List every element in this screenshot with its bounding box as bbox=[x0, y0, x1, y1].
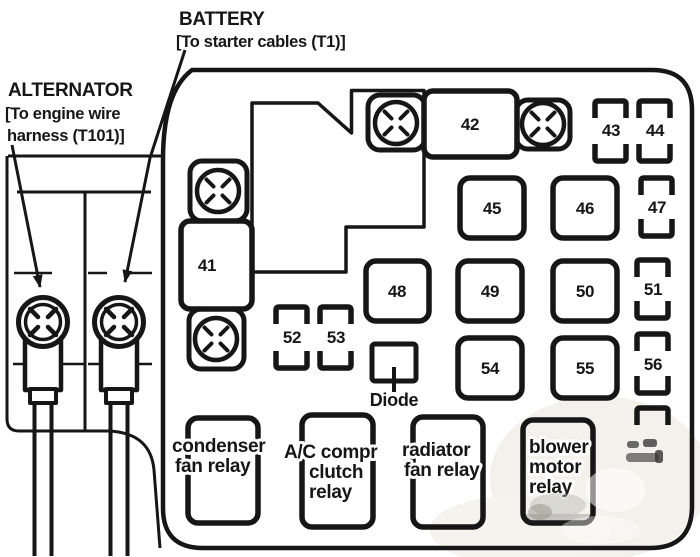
fuse-49: 49 bbox=[458, 261, 522, 321]
bracket-icon bbox=[637, 334, 668, 351]
alternator-pointer-arrow bbox=[12, 145, 40, 287]
fuse-42: 42 bbox=[368, 91, 570, 157]
fuse-54-number: 54 bbox=[481, 359, 500, 378]
battery-label: BATTERY bbox=[179, 9, 265, 30]
diode-symbol: Diode bbox=[370, 344, 419, 410]
bracket-icon bbox=[595, 144, 626, 161]
bracket-icon bbox=[595, 101, 626, 118]
bracket-icon bbox=[637, 260, 668, 277]
bracket-icon bbox=[320, 351, 351, 368]
fuse-box-diagram-page: 42 41 43 44 47 51 56 52 bbox=[0, 0, 700, 557]
alternator-callout: ALTERNATOR [To engine wire harness (T101… bbox=[5, 80, 133, 145]
bracket-icon bbox=[641, 178, 672, 195]
alternator-sublabel-2: harness (T101)] bbox=[7, 127, 124, 145]
battery-callout: BATTERY [To starter cables (T1)] bbox=[176, 9, 345, 51]
fuse-50-number: 50 bbox=[576, 282, 594, 301]
fuse-45-number: 45 bbox=[483, 199, 501, 218]
battery-pointer-arrow bbox=[125, 50, 185, 282]
fuse-slot-51: 51 bbox=[637, 260, 668, 318]
fuse-41: 41 bbox=[181, 161, 252, 369]
fuse-54: 54 bbox=[458, 338, 522, 398]
screw-terminal-icon bbox=[522, 103, 564, 145]
fuse-box-diagram: 42 41 43 44 47 51 56 52 bbox=[0, 0, 700, 557]
relay-ac-label-2: clutch bbox=[309, 462, 363, 483]
diode-label: Diode bbox=[370, 390, 419, 410]
relay-condenser-fan: condenser fan relay bbox=[172, 418, 266, 523]
fuse-48: 48 bbox=[366, 261, 429, 321]
relay-radiator-label-2: fan relay bbox=[404, 460, 480, 481]
relay-blower-label-2: motor bbox=[529, 457, 582, 478]
bracket-icon bbox=[637, 376, 668, 393]
screw-terminal-icon bbox=[197, 170, 239, 212]
fuse-slot-56: 56 bbox=[637, 334, 668, 393]
fuse-41-number: 41 bbox=[198, 256, 216, 275]
fuse-slot-47: 47 bbox=[641, 178, 672, 236]
fuse-50: 50 bbox=[553, 261, 617, 321]
screw-terminal-icon bbox=[375, 102, 417, 144]
bracket-icon bbox=[320, 307, 351, 324]
fuse-46-number: 46 bbox=[576, 199, 594, 218]
fuse-49-number: 49 bbox=[481, 282, 499, 301]
fuse-42-number: 42 bbox=[461, 115, 479, 134]
fuse-slot-52: 52 bbox=[276, 307, 307, 368]
alternator-label: ALTERNATOR bbox=[8, 80, 133, 101]
relay-ac-compressor-clutch: A/C compr clutch relay bbox=[284, 415, 378, 527]
fuse-52-number: 52 bbox=[283, 328, 301, 347]
fuse-43-number: 43 bbox=[602, 121, 620, 140]
fuse-55: 55 bbox=[553, 338, 617, 398]
relay-blower-label-1: blower bbox=[529, 437, 589, 458]
battery-cable bbox=[101, 336, 137, 556]
fuse-47-number: 47 bbox=[648, 198, 666, 217]
fuse-slot-44: 44 bbox=[639, 101, 670, 161]
alternator-ring-terminal bbox=[19, 298, 68, 347]
fuse-53-number: 53 bbox=[327, 328, 345, 347]
fuse-slot-53: 53 bbox=[320, 307, 351, 368]
fuse-slot-43: 43 bbox=[595, 101, 626, 161]
relay-radiator-label-1: radiator bbox=[402, 440, 471, 461]
relay-ac-label-3: relay bbox=[309, 482, 353, 503]
fuse-45: 45 bbox=[460, 178, 524, 238]
relay-condenser-label-1: condenser bbox=[172, 436, 266, 457]
alternator-cable bbox=[25, 336, 61, 556]
screw-terminal-icon bbox=[195, 318, 237, 360]
fuse-48-number: 48 bbox=[388, 282, 406, 301]
bracket-icon bbox=[639, 101, 670, 118]
bracket-icon bbox=[637, 301, 668, 318]
relay-condenser-label-2: fan relay bbox=[175, 456, 251, 477]
battery-sublabel: [To starter cables (T1)] bbox=[176, 33, 345, 51]
fuse-41-body bbox=[181, 221, 252, 309]
fuse-46: 46 bbox=[553, 178, 617, 238]
fuse-51-number: 51 bbox=[644, 280, 662, 299]
bracket-icon bbox=[639, 144, 670, 161]
fuse-55-number: 55 bbox=[576, 359, 594, 378]
bracket-icon bbox=[276, 307, 307, 324]
battery-ring-terminal bbox=[95, 298, 144, 347]
bracket-icon bbox=[276, 351, 307, 368]
bracket-icon bbox=[641, 219, 672, 236]
relay-ac-label-1: A/C compr bbox=[284, 442, 378, 463]
alternator-sublabel-1: [To engine wire bbox=[5, 105, 120, 123]
fuse-44-number: 44 bbox=[646, 121, 665, 140]
fuse-56-number: 56 bbox=[644, 355, 662, 374]
